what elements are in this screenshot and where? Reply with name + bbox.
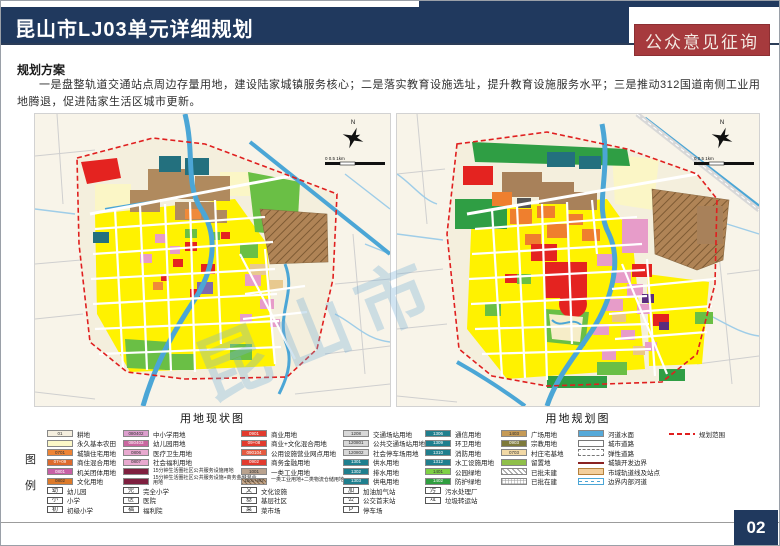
legend-item: 1301供水用地 [343, 458, 425, 468]
legend-color-swatch: 0902 [241, 459, 267, 466]
legend-item: 080403幼儿园用地 [123, 439, 257, 449]
scale-bar: 0 0.5 1km [325, 156, 385, 165]
legend-icon-swatch: 菜 [241, 506, 257, 513]
legend-item: 15分钟生活圈社区公共服务设施+商务金融混合用地 [123, 477, 257, 487]
legend-item-label: 公共交通场站用地 [373, 438, 425, 448]
legend-color-swatch: 090104 [241, 449, 267, 456]
legend-item: 加加油加气站 [343, 486, 425, 496]
legend-item: 1402防护绿地 [425, 477, 494, 487]
legend-item: 0806医疗卫生用地 [123, 448, 257, 458]
legend-item: 1309环卫用地 [425, 439, 494, 449]
legend-item: 幼幼儿园 [47, 486, 116, 496]
legend-item: 城镇开发边界 [578, 458, 660, 468]
legend-item: 1303供电用地 [343, 477, 425, 487]
legend-color-swatch [501, 478, 527, 485]
legend-color-swatch [47, 440, 73, 447]
legend-icon-swatch: 文 [241, 487, 257, 494]
legend-item-label: 消防用地 [455, 448, 481, 458]
legend-item-label: 文化设施 [261, 486, 287, 496]
legend-item-label: 环卫用地 [455, 438, 481, 448]
legend-item-label: 社会停车场用地 [373, 448, 419, 458]
legend-item-label: 加油加气站 [363, 486, 396, 496]
footer-rule [1, 522, 780, 523]
legend-icon-swatch: P [343, 506, 359, 513]
legend-item: 城市道路 [578, 439, 660, 449]
legend-item: 0703村庄宅基地 [501, 448, 564, 458]
legend-icon-swatch: 公 [343, 497, 359, 504]
legend-item: 120802社会停车场用地 [343, 448, 425, 458]
scale-bar: 0 0.5 1km [694, 156, 754, 165]
legend-item-label: 商住混合用地 [77, 457, 116, 467]
plan-description: 一是盘整轨道交通站点周边存量用地，建设陆家城镇服务核心；二是落实教育设施选址，提… [17, 77, 767, 111]
legend-item-label: 社会福利用地 [153, 457, 192, 467]
legend-item: 福福利院 [123, 505, 257, 515]
legend-item: 污污水处理厂 [425, 486, 494, 496]
legend-item-label: 防护绿地 [455, 476, 481, 486]
legend-item: 1302排水用地 [343, 467, 425, 477]
legend-item-label: 排水用地 [373, 467, 399, 477]
legend-item-label: 污水处理厂 [445, 486, 478, 496]
legend-item: 弹性道路 [578, 448, 660, 458]
legend-item-label: 宗教用地 [531, 438, 557, 448]
legend-color-swatch: 07+09 [47, 459, 73, 466]
legend-item: 河道水面 [578, 429, 660, 439]
legend-color-swatch [501, 459, 527, 466]
page-number: 02 [734, 510, 778, 546]
legend-item: 080402中小学用地 [123, 429, 257, 439]
legend-color-swatch: 0901 [241, 430, 267, 437]
legend-color-swatch: 0807 [123, 459, 149, 466]
legend-item: 1310消防用地 [425, 448, 494, 458]
legend-color-swatch: 1301 [343, 459, 369, 466]
legend-color-swatch [578, 430, 604, 437]
legend-item: 1306通信用地 [425, 429, 494, 439]
legend-item-label: 医院 [143, 495, 156, 505]
legend-color-swatch [578, 449, 604, 456]
legend-color-swatch: 0703 [501, 449, 527, 456]
legend-item-label: 幼儿园 [67, 486, 87, 496]
legend-column-8: 规划范围 [669, 429, 725, 439]
legend-color-swatch [578, 468, 604, 475]
legend-color-swatch: 1402 [425, 478, 451, 485]
legend-item-label: 市域轨道线及站点 [608, 467, 660, 477]
legend-icon-swatch: 初 [47, 506, 63, 513]
legend-item-label: 耕地 [77, 429, 90, 439]
legend-icon-swatch: 福 [123, 506, 139, 513]
legend-item-label: 垃圾转运站 [445, 495, 478, 505]
legend-color-swatch: 1001+W2 [241, 478, 267, 485]
legend-column-7: 河道水面城市道路弹性道路城镇开发边界市域轨道线及站点边界内部河道 [578, 429, 660, 486]
legend-item: 医医院 [123, 496, 257, 506]
legend-item: 边界内部河道 [578, 477, 660, 487]
legend-item-label: 永久基本农田 [77, 438, 116, 448]
legend: 图例 01耕地永久基本农田0701城镇住宅用地07+09商住混合用地0801机关… [1, 427, 780, 519]
legend-item-label: 留置地 [531, 457, 551, 467]
planned-map-title: 用地规划图 [396, 410, 760, 426]
legend-item-label: 供水用地 [373, 457, 399, 467]
legend-color-swatch: 0802 [47, 478, 73, 485]
legend-color-swatch [669, 433, 695, 435]
legend-item-label: 商业+文化混合用地 [271, 438, 327, 448]
legend-item-label: 水工设施用地 [455, 457, 494, 467]
header-bar: 昆山市LJ03单元详细规划 [1, 7, 629, 43]
legend-item-label: 已批在建 [531, 476, 557, 486]
legend-color-swatch: 120801 [343, 440, 369, 447]
svg-text:0 0.5 1km: 0 0.5 1km [694, 156, 714, 161]
legend-color-swatch: 1309 [425, 440, 451, 447]
legend-item-label: 广场用地 [531, 429, 557, 439]
legend-color-swatch: 1306 [425, 430, 451, 437]
legend-item: 1403广场用地 [501, 429, 564, 439]
legend-item: 垃垃圾转运站 [425, 496, 494, 506]
legend-columns: 01耕地永久基本农田0701城镇住宅用地07+09商住混合用地0801机关团体用… [47, 429, 777, 519]
legend-item: 0801机关团体用地 [47, 467, 116, 477]
legend-item-label: 商务金融用地 [271, 457, 310, 467]
legend-item: 永久基本农田 [47, 439, 116, 449]
legend-item-label: 公交首末站 [363, 495, 396, 505]
page-title: 昆山市LJ03单元详细规划 [15, 13, 254, 42]
svg-text:N: N [720, 120, 724, 126]
legend-item: 初初级小学 [47, 505, 116, 515]
section-heading: 规划方案 [17, 61, 65, 78]
legend-item-label: 公用设施营业网点用地 [271, 448, 336, 458]
legend-color-swatch [578, 440, 604, 447]
legend-icon-swatch: 完 [123, 487, 139, 494]
north-arrow-icon [339, 124, 367, 152]
legend-label: 图例 [25, 447, 38, 499]
legend-column-4: 1208交通场站用地120801公共交通场站用地120802社会停车场用地130… [343, 429, 425, 515]
legend-item-label: 完全小学 [143, 486, 169, 496]
legend-color-swatch: 0806 [123, 449, 149, 456]
svg-text:N: N [351, 120, 355, 126]
legend-color-swatch: 01 [47, 430, 73, 437]
legend-item-label: 公园绿地 [455, 467, 481, 477]
legend-color-swatch: 1302 [343, 468, 369, 475]
legend-item-label: 小学 [67, 495, 80, 505]
legend-item-label: 医疗卫生用地 [153, 448, 192, 458]
legend-icon-swatch: 加 [343, 487, 359, 494]
legend-item: 完完全小学 [123, 486, 257, 496]
legend-color-swatch [123, 478, 149, 485]
legend-item: 市域轨道线及站点 [578, 467, 660, 477]
legend-item-label: 规划范围 [699, 429, 725, 439]
current-map-title: 用地现状图 [34, 410, 391, 426]
legend-item: 07+09商住混合用地 [47, 458, 116, 468]
legend-color-swatch [501, 468, 527, 475]
legend-item-label: 停车场 [363, 505, 383, 515]
legend-color-swatch: 1303 [343, 478, 369, 485]
legend-item-label: 基层社区 [261, 495, 287, 505]
legend-color-swatch [578, 459, 604, 466]
planned-map-figure: N 0 0.5 1km 用地规划图 [396, 113, 760, 426]
legend-item: 0802文化用地 [47, 477, 116, 487]
legend-icon-swatch: 垃 [425, 497, 441, 504]
legend-color-swatch: 0801 [47, 468, 73, 475]
legend-item-label: 机关团体用地 [77, 467, 116, 477]
legend-item-label: 河道水面 [608, 429, 634, 439]
legend-item-label: 交通场站用地 [373, 429, 412, 439]
legend-item: P停车场 [343, 505, 425, 515]
legend-item: 规划范围 [669, 429, 725, 439]
legend-column-6: 1403广场用地0903宗教用地0703村庄宅基地留置地已批未建已批在建 [501, 429, 564, 486]
legend-column-5: 1306通信用地1309环卫用地1310消防用地1312水工设施用地1401公园… [425, 429, 494, 505]
legend-color-swatch: 09+08 [241, 440, 267, 447]
legend-item-label: 城镇住宅用地 [77, 448, 116, 458]
legend-color-swatch: 0903 [501, 440, 527, 447]
legend-column-1: 01耕地永久基本农田0701城镇住宅用地07+09商住混合用地0801机关团体用… [47, 429, 116, 515]
legend-color-swatch: 080403 [123, 440, 149, 447]
legend-item-label: 中小学用地 [153, 429, 186, 439]
legend-item-label: 城镇开发边界 [608, 457, 647, 467]
legend-item: 1312水工设施用地 [425, 458, 494, 468]
legend-item: 已批未建 [501, 467, 564, 477]
planned-landuse-map: N 0 0.5 1km [396, 113, 760, 407]
legend-item-label: 文化用地 [77, 476, 103, 486]
legend-item-label: 一类工业用地 [271, 467, 310, 477]
legend-item: 留置地 [501, 458, 564, 468]
legend-icon-swatch: 基 [241, 497, 257, 504]
legend-item: 已批在建 [501, 477, 564, 487]
legend-item: 0903宗教用地 [501, 439, 564, 449]
legend-item-label: 弹性道路 [608, 448, 634, 458]
legend-color-swatch: 1001 [241, 468, 267, 475]
legend-color-swatch: 1403 [501, 430, 527, 437]
legend-item-label: 菜市场 [261, 505, 281, 515]
legend-item-label: 福利院 [143, 505, 163, 515]
legend-icon-swatch: 小 [47, 497, 63, 504]
current-landuse-map: N 0 0.5 1km [34, 113, 391, 407]
legend-item: 01耕地 [47, 429, 116, 439]
legend-color-swatch: 1312 [425, 459, 451, 466]
current-map-figure: N 0 0.5 1km 用地现状图 [34, 113, 391, 426]
legend-icon-swatch: 污 [425, 487, 441, 494]
legend-icon-swatch: 幼 [47, 487, 63, 494]
legend-item: 120801公共交通场站用地 [343, 439, 425, 449]
legend-item: 0807社会福利用地 [123, 458, 257, 468]
public-consultation-badge: 公众意见征询 [634, 24, 770, 56]
legend-color-swatch: 1208 [343, 430, 369, 437]
legend-color-swatch [123, 468, 149, 475]
legend-color-swatch: 120802 [343, 449, 369, 456]
legend-item-label: 幼儿园用地 [153, 438, 186, 448]
legend-item-label: 初级小学 [67, 505, 93, 515]
legend-color-swatch: 080402 [123, 430, 149, 437]
legend-item: 1401公园绿地 [425, 467, 494, 477]
legend-item: 公公交首末站 [343, 496, 425, 506]
legend-item: 小小学 [47, 496, 116, 506]
legend-color-swatch: 0701 [47, 449, 73, 456]
legend-item-label: 边界内部河道 [608, 476, 647, 486]
legend-icon-swatch: 医 [123, 497, 139, 504]
maps-row: N 0 0.5 1km 用地现状图 [1, 113, 780, 423]
page: 昆山市LJ03单元详细规划 公众意见征询 规划方案 一是盘整轨道交通站点周边存量… [0, 0, 780, 546]
legend-item-label: 已批未建 [531, 467, 557, 477]
legend-color-swatch: 1401 [425, 468, 451, 475]
north-arrow-icon [708, 124, 736, 152]
legend-item: 1208交通场站用地 [343, 429, 425, 439]
legend-color-swatch [578, 478, 604, 485]
legend-item-label: 村庄宅基地 [531, 448, 564, 458]
legend-item-label: 供电用地 [373, 476, 399, 486]
svg-text:0 0.5 1km: 0 0.5 1km [325, 156, 345, 161]
legend-column-2: 080402中小学用地080403幼儿园用地0806医疗卫生用地0807社会福利… [123, 429, 257, 515]
legend-color-swatch: 1310 [425, 449, 451, 456]
legend-item-label: 通信用地 [455, 429, 481, 439]
legend-item: 0701城镇住宅用地 [47, 448, 116, 458]
legend-item-label: 城市道路 [608, 438, 634, 448]
legend-item-label: 商业用地 [271, 429, 297, 439]
